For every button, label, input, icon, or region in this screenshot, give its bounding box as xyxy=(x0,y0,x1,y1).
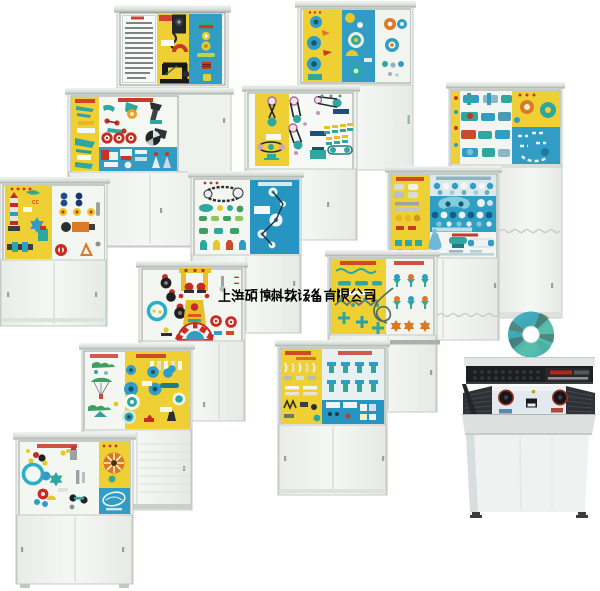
svg-text:cc: cc xyxy=(32,199,40,206)
svg-text:▬: ▬ xyxy=(234,274,239,279)
svg-text:▬: ▬ xyxy=(234,280,239,285)
